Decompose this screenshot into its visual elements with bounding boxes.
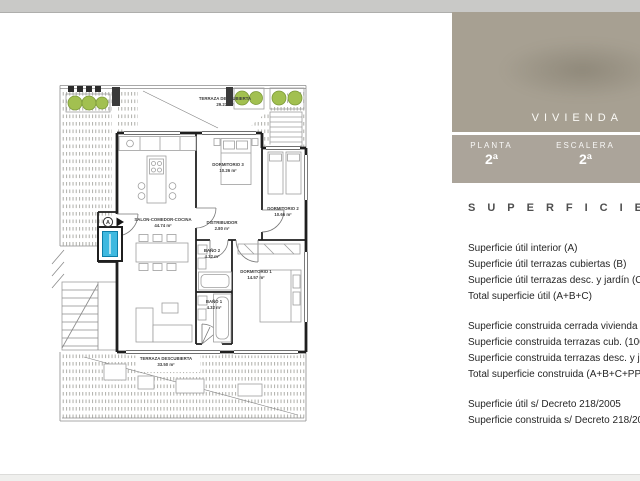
plant-icon <box>82 96 96 110</box>
svg-text:29.23 m²: 29.23 m² <box>216 102 234 107</box>
list-line: Superficie construida cerrada vivienda (… <box>468 319 640 335</box>
list-line: Superficie útil s/ Decreto 218/2005 <box>468 397 640 413</box>
list-line: Superficie construida s/ Decreto 218/200… <box>468 413 640 429</box>
decreto-group: Superficie útil s/ Decreto 218/2005 Supe… <box>468 397 640 429</box>
svg-text:44.74 m²: 44.74 m² <box>154 223 172 228</box>
list-line: Total superficie construida (A+B+C+PPZC) <box>468 367 640 383</box>
svg-text:33.50 m²: 33.50 m² <box>157 362 175 367</box>
room-label-dormitorio-3: DORMITORIO 3 <box>212 162 244 167</box>
svg-text:10.26 m²: 10.26 m² <box>219 168 237 173</box>
room-label-dormitorio-1: DORMITORIO 1 <box>240 269 272 274</box>
plant-icon <box>96 97 108 109</box>
side-panel: VIVIENDA PLANTA 2ª ESCALERA 2ª SUPERFICI… <box>452 12 640 474</box>
floorplan-svg: A TERRAZA DESCUBIERTA 29.23 m² SALON-COM… <box>48 68 324 432</box>
planta-value: 2ª <box>452 151 531 167</box>
vivienda-label: VIVIENDA <box>532 112 623 124</box>
plant-icon <box>68 96 82 110</box>
floor-plan: A TERRAZA DESCUBIERTA 29.23 m² SALON-COM… <box>48 68 324 432</box>
planta-escalera-box: PLANTA 2ª ESCALERA 2ª <box>452 135 640 183</box>
planta-label: PLANTA <box>452 141 531 150</box>
room-label-bano-1: BAÑO 1 <box>206 299 223 304</box>
superficie-construida-group: Superficie construida cerrada vivienda (… <box>468 319 640 383</box>
list-line: Superficie construida terrazas desc. y j… <box>468 351 640 367</box>
room-label-dormitorio-2: DORMITORIO 2 <box>267 206 299 211</box>
room-label-terraza-bottom: TERRAZA DESCUBIERTA <box>140 356 192 361</box>
list-line: Superficie útil interior (A) <box>468 241 640 257</box>
elevator <box>98 227 122 261</box>
escalera-label: ESCALERA <box>531 141 640 150</box>
superficies-heading: SUPERFICIES <box>468 202 640 214</box>
svg-text:10.66 m²: 10.66 m² <box>274 212 292 217</box>
list-line: Superficie útil terrazas cubiertas (B) <box>468 257 640 273</box>
list-line: Superficie construida terrazas cub. (100… <box>468 335 640 351</box>
superficie-list: Superficie útil interior (A) Superficie … <box>468 241 640 429</box>
planta-column: PLANTA 2ª <box>452 135 531 183</box>
logo-watermark <box>500 40 640 100</box>
room-label-terraza-top: TERRAZA DESCUBIERTA <box>199 96 251 101</box>
svg-text:2.80 m²: 2.80 m² <box>215 226 230 231</box>
list-line: Total superficie útil (A+B+C) <box>468 289 640 305</box>
svg-text:4.32 m²: 4.32 m² <box>207 305 222 310</box>
room-label-salon: SALON-COMEDOR-COCINA <box>134 217 191 222</box>
plant-icon <box>250 92 263 105</box>
svg-text:14.57 m²: 14.57 m² <box>247 275 265 280</box>
plant-icon <box>272 91 286 105</box>
escalera-column: ESCALERA 2ª <box>531 135 640 183</box>
svg-text:4.32 m²: 4.32 m² <box>205 254 220 259</box>
stairs <box>62 282 120 350</box>
room-label-bano-2: BAÑO 2 <box>204 248 221 253</box>
page: { "panel": { "vivienda_label": "VIVIENDA… <box>0 0 640 480</box>
vivienda-box: VIVIENDA <box>452 12 640 132</box>
list-line: Superficie útil terrazas desc. y jardín … <box>468 273 640 289</box>
superficie-util-group: Superficie útil interior (A) Superficie … <box>468 241 640 305</box>
deck-lounger <box>270 112 302 146</box>
room-label-distribuidor: DISTRIBUIDOR <box>206 220 238 225</box>
escalera-value: 2ª <box>531 151 640 167</box>
plant-icon <box>288 91 302 105</box>
svg-text:A: A <box>106 220 110 226</box>
